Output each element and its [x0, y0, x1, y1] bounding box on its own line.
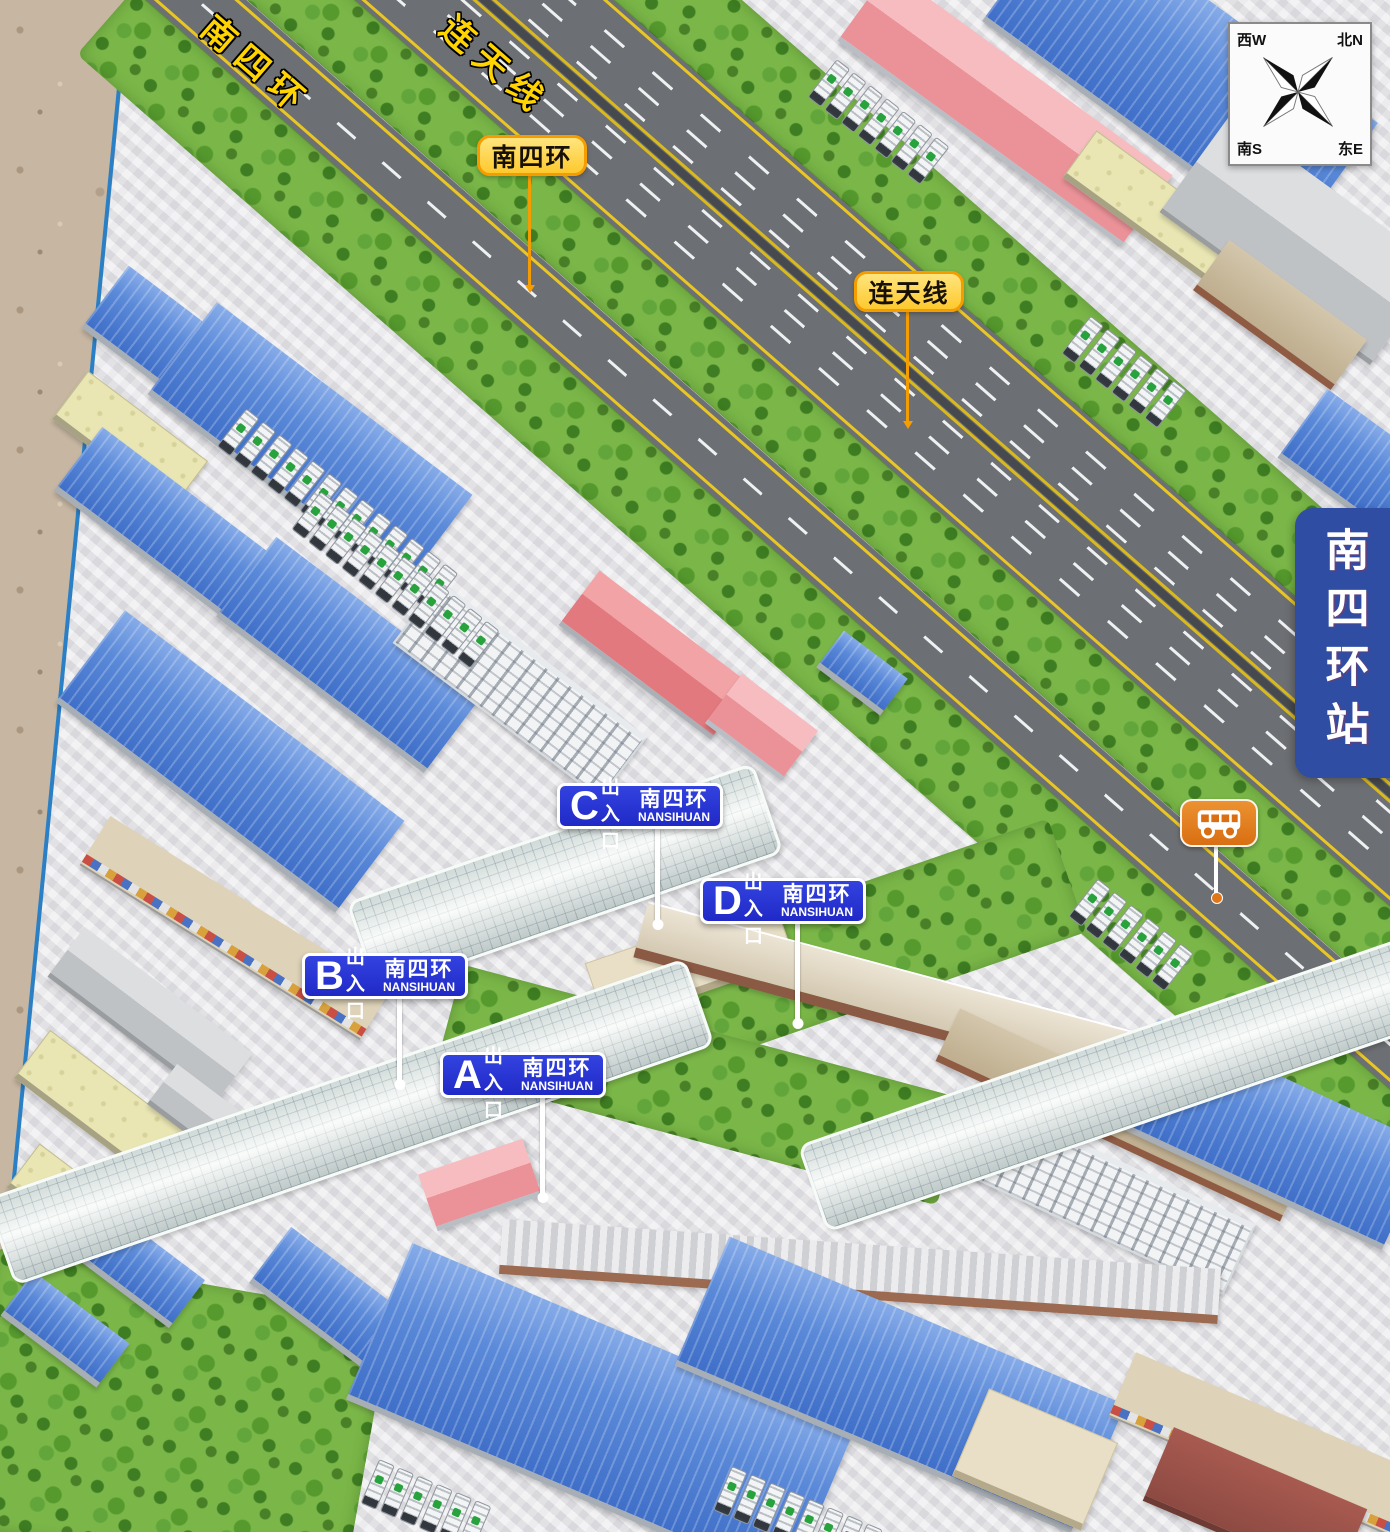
compass-south-label: 南S	[1237, 138, 1262, 159]
entrance-gate-label: 出入口	[484, 1041, 521, 1122]
station-name-banner: 南四环站	[1295, 508, 1390, 778]
entrance-letter: A	[453, 1055, 482, 1095]
pointer-line-liantian	[906, 310, 909, 422]
road-badge-nansihuan[interactable]: 南四环	[477, 135, 587, 176]
bus-stop-dot	[1211, 892, 1223, 904]
parked-buses-bottom-1	[360, 1459, 491, 1532]
entrance-sign-b[interactable]: B 出入口 南四环 NANSIHUAN	[302, 953, 468, 999]
entrance-road-cn: 南四环	[385, 958, 454, 981]
entrance-sign-a[interactable]: A 出入口 南四环 NANSIHUAN	[440, 1052, 606, 1098]
entrance-road-cn: 南四环	[523, 1057, 592, 1080]
pointer-line-entrance-b	[397, 995, 402, 1085]
bus-stop-marker[interactable]	[1180, 799, 1258, 847]
entrance-sign-c[interactable]: C 出入口 南四环 NANSIHUAN	[557, 783, 723, 829]
bus-icon	[1193, 806, 1245, 840]
station-name-text: 南四环站	[1311, 527, 1375, 759]
entrance-sign-d[interactable]: D 出入口 南四环 NANSIHUAN	[700, 878, 866, 924]
pointer-line-entrance-a	[540, 1096, 545, 1198]
entrance-road-en: NANSIHUAN	[521, 1080, 593, 1093]
entrance-gate-label: 出入口	[601, 772, 638, 853]
pointer-line-bus-stop	[1214, 841, 1218, 893]
road-badge-liantian[interactable]: 连天线	[854, 271, 964, 312]
entrance-letter: B	[315, 956, 344, 996]
compass-star-icon	[1250, 44, 1346, 140]
entrance-gate-label: 出入口	[346, 942, 383, 1023]
kiosk-red-roof	[418, 1139, 542, 1232]
entrance-letter: C	[570, 786, 599, 826]
entrance-road-en: NANSIHUAN	[383, 981, 455, 994]
pointer-line-nansihuan	[528, 174, 531, 286]
station-map: 南四环 连天线 南四环 连天线	[0, 0, 1390, 1532]
entrance-road-en: NANSIHUAN	[781, 906, 853, 919]
entrance-road-en: NANSIHUAN	[638, 811, 710, 824]
entrance-letter: D	[713, 881, 742, 921]
entrance-road-cn: 南四环	[783, 883, 852, 906]
pointer-line-entrance-d	[795, 922, 800, 1024]
pointer-line-entrance-c	[655, 827, 660, 925]
compass-east-label: 东E	[1338, 138, 1363, 159]
compass-rose: 西W 北N 南S 东E	[1228, 22, 1372, 166]
entrance-road-cn: 南四环	[640, 788, 709, 811]
entrance-gate-label: 出入口	[744, 867, 781, 948]
